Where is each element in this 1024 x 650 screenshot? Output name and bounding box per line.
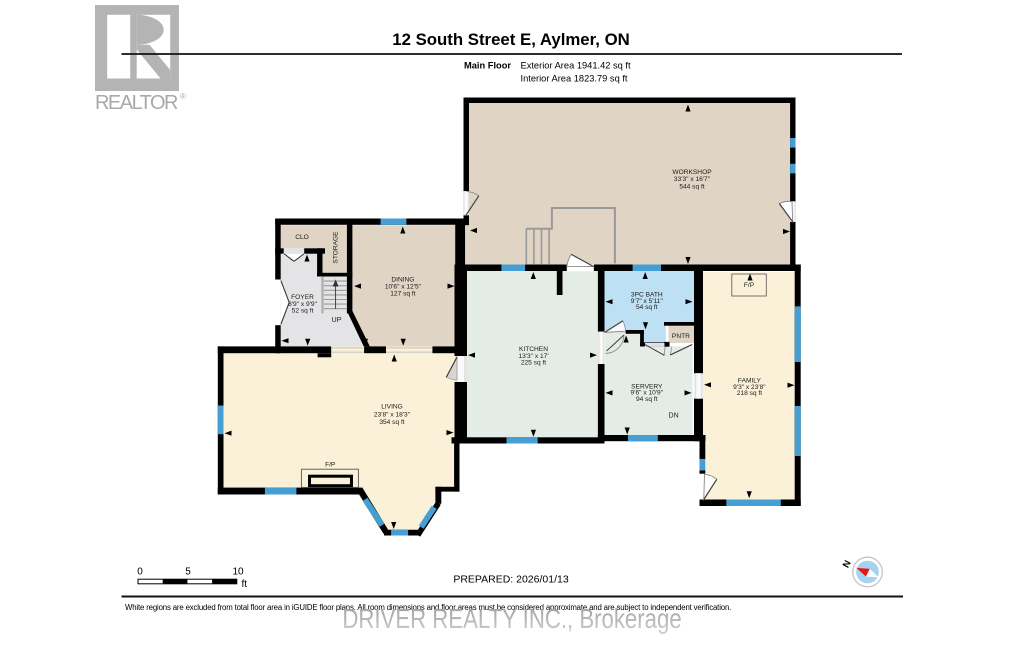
svg-text:544 sq ft: 544 sq ft bbox=[679, 184, 704, 191]
svg-text:DRIVER REALTY INC., Brokerage: DRIVER REALTY INC., Brokerage bbox=[342, 604, 681, 635]
svg-text:127 sq ft: 127 sq ft bbox=[390, 291, 415, 298]
svg-text:PNTR: PNTR bbox=[672, 333, 690, 340]
svg-text:CLO: CLO bbox=[295, 234, 309, 241]
svg-text:Interior Area 1823.79 sq ft: Interior Area 1823.79 sq ft bbox=[521, 74, 628, 84]
svg-text:F/P: F/P bbox=[325, 462, 336, 469]
svg-text:354 sq ft: 354 sq ft bbox=[379, 419, 404, 426]
svg-text:52 sq ft: 52 sq ft bbox=[292, 308, 314, 315]
svg-text:N: N bbox=[841, 559, 854, 570]
svg-text:23'8" x 18'3": 23'8" x 18'3" bbox=[374, 411, 411, 418]
svg-text:10'6" x 12'5": 10'6" x 12'5" bbox=[385, 284, 422, 291]
svg-text:Main Floor: Main Floor bbox=[464, 61, 511, 71]
svg-text:REALTOR: REALTOR bbox=[95, 92, 179, 114]
svg-text:218 sq ft: 218 sq ft bbox=[737, 390, 762, 397]
svg-text:5: 5 bbox=[185, 567, 191, 578]
svg-text:33'3" x 16'7": 33'3" x 16'7" bbox=[674, 176, 711, 183]
svg-text:10: 10 bbox=[232, 567, 244, 578]
svg-text:PREPARED: 2026/01/13: PREPARED: 2026/01/13 bbox=[453, 574, 569, 586]
svg-text:225 sq ft: 225 sq ft bbox=[521, 359, 546, 366]
svg-text:WORKSHOP: WORKSHOP bbox=[672, 169, 712, 176]
svg-text:Exterior Area 1941.42 sq ft: Exterior Area 1941.42 sq ft bbox=[521, 61, 631, 71]
svg-text:ft: ft bbox=[242, 579, 248, 590]
svg-text:LIVING: LIVING bbox=[381, 404, 403, 411]
svg-text:54 sq ft: 54 sq ft bbox=[636, 304, 658, 311]
svg-text:94 sq ft: 94 sq ft bbox=[636, 396, 658, 403]
svg-text:F/P: F/P bbox=[744, 282, 755, 289]
svg-text:12 South Street E, Aylmer, ON: 12 South Street E, Aylmer, ON bbox=[392, 30, 630, 49]
svg-text:DN: DN bbox=[669, 413, 679, 420]
svg-text:DINING: DINING bbox=[391, 276, 414, 283]
svg-text:®: ® bbox=[180, 92, 186, 101]
svg-text:0: 0 bbox=[137, 567, 143, 578]
svg-text:STORAGE: STORAGE bbox=[333, 231, 340, 264]
svg-text:UP: UP bbox=[332, 315, 342, 324]
